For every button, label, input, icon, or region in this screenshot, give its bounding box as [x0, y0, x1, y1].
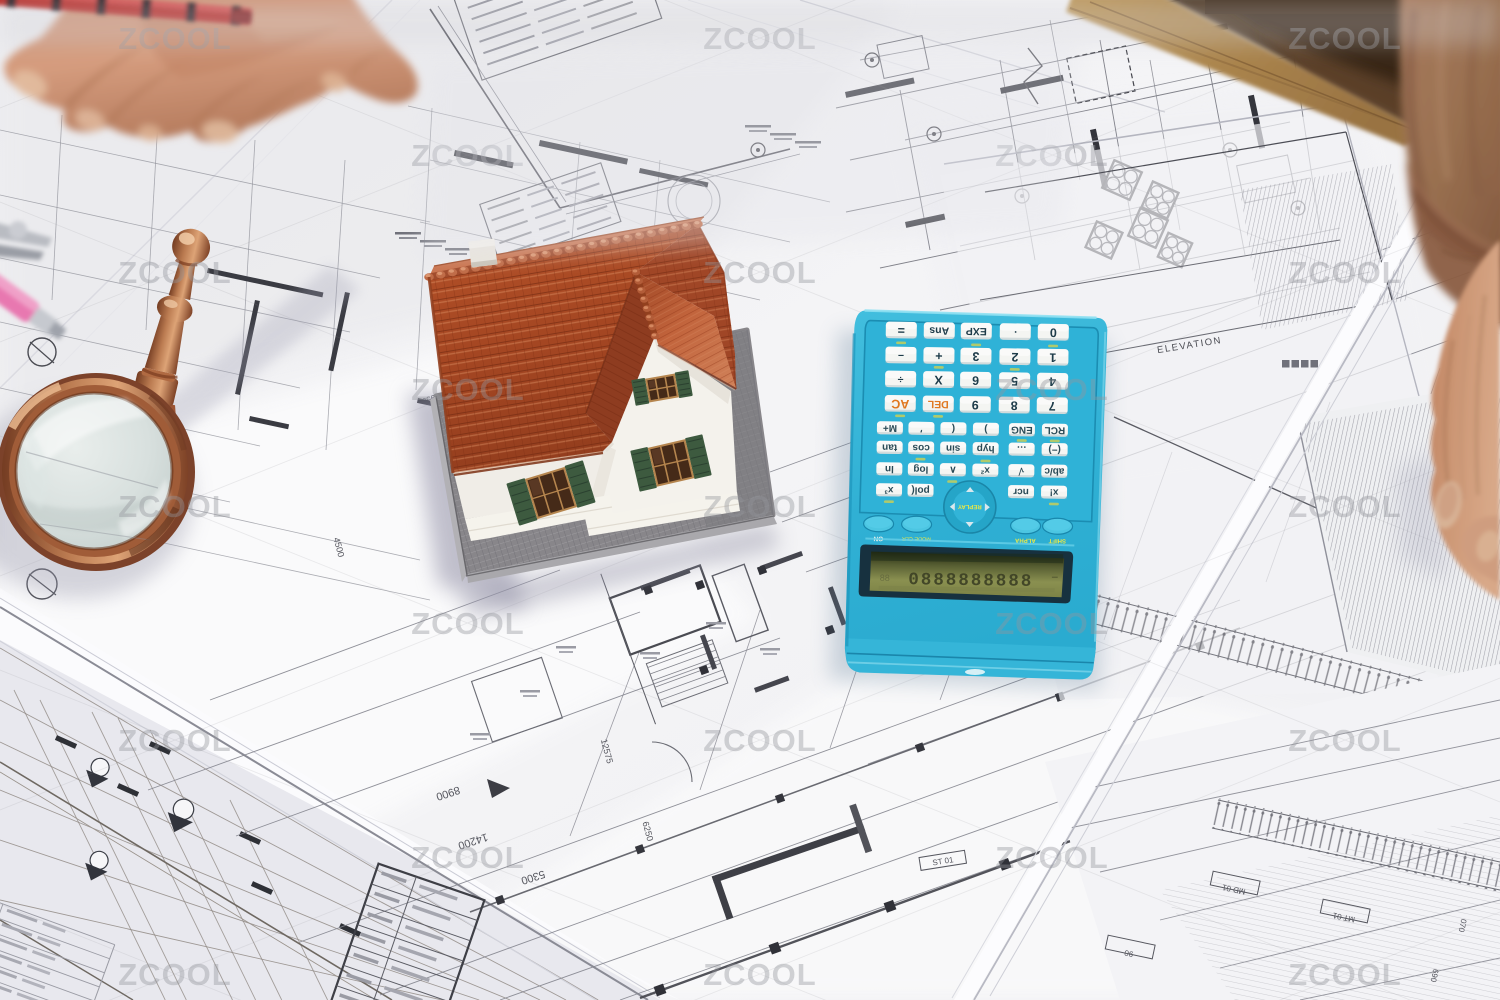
svg-text:88: 88 [880, 573, 890, 583]
svg-text:cos: cos [912, 442, 930, 453]
svg-text:SHIFT: SHIFT [1048, 537, 1066, 543]
svg-text:ZCOOL: ZCOOL [1288, 723, 1402, 758]
svg-text:M+: M+ [883, 422, 897, 433]
svg-text:0: 0 [1050, 325, 1057, 339]
svg-text:ZCOOL: ZCOOL [703, 957, 817, 992]
svg-text:ab/c: ab/c [1044, 465, 1065, 476]
svg-text:x!: x! [1050, 486, 1059, 497]
svg-text:pol(: pol( [911, 484, 930, 495]
svg-text:ZCOOL: ZCOOL [118, 957, 232, 992]
svg-text:=: = [898, 323, 906, 337]
svg-text:1: 1 [1049, 350, 1056, 364]
svg-text:x²: x² [980, 464, 990, 475]
svg-text:ZCOOL: ZCOOL [1288, 255, 1402, 290]
svg-text:9: 9 [972, 398, 979, 412]
svg-text:3: 3 [972, 349, 979, 363]
svg-text:ZCOOL: ZCOOL [703, 723, 817, 758]
svg-text:ln: ln [885, 463, 894, 474]
svg-text:+: + [935, 349, 943, 363]
svg-text:ZCOOL: ZCOOL [1288, 489, 1402, 524]
svg-text:ALPHA: ALPHA [1014, 537, 1035, 543]
svg-text:÷: ÷ [897, 373, 903, 385]
svg-text:ZCOOL: ZCOOL [1288, 957, 1402, 992]
svg-text:ZCOOL: ZCOOL [118, 489, 232, 524]
svg-text:ZCOOL: ZCOOL [995, 372, 1109, 407]
svg-text:): ) [984, 423, 987, 434]
svg-text:2: 2 [1011, 350, 1018, 364]
svg-text:ZCOOL: ZCOOL [411, 840, 525, 875]
svg-text:ENG: ENG [1011, 424, 1033, 435]
svg-text:sin: sin [946, 442, 961, 453]
svg-text:tan: tan [882, 441, 897, 452]
svg-text:√: √ [1018, 465, 1024, 476]
svg-text:log: log [913, 463, 928, 474]
svg-text:x³: x³ [884, 484, 894, 495]
svg-text:ZCOOL: ZCOOL [703, 255, 817, 290]
svg-text:−: − [898, 349, 904, 361]
svg-text:REPLAY: REPLAY [958, 503, 982, 509]
svg-text:ZCOOL: ZCOOL [703, 489, 817, 524]
svg-text:RCL: RCL [1045, 424, 1066, 435]
svg-text:(−): (−) [1048, 444, 1061, 455]
svg-text:hyp: hyp [977, 443, 995, 454]
svg-text:…: … [1017, 443, 1027, 454]
svg-text:6: 6 [972, 373, 979, 387]
svg-text:AC: AC [891, 397, 909, 411]
svg-text:−: − [1051, 570, 1058, 584]
svg-text:ZCOOL: ZCOOL [995, 840, 1109, 875]
svg-text:ncr: ncr [1013, 486, 1029, 497]
svg-text:·: · [1013, 325, 1017, 337]
svg-text:EXP: EXP [966, 325, 987, 337]
svg-text:ZCOOL: ZCOOL [118, 255, 232, 290]
svg-text:ZCOOL: ZCOOL [411, 372, 525, 407]
svg-text:X: X [934, 373, 943, 387]
svg-text:ZCOOL: ZCOOL [995, 606, 1109, 641]
svg-text:ZCOOL: ZCOOL [411, 606, 525, 641]
svg-text:DEL: DEL [927, 398, 949, 410]
svg-text:∧: ∧ [949, 464, 956, 475]
svg-text:Ans: Ans [929, 324, 949, 336]
svg-text:ZCOOL: ZCOOL [118, 723, 232, 758]
